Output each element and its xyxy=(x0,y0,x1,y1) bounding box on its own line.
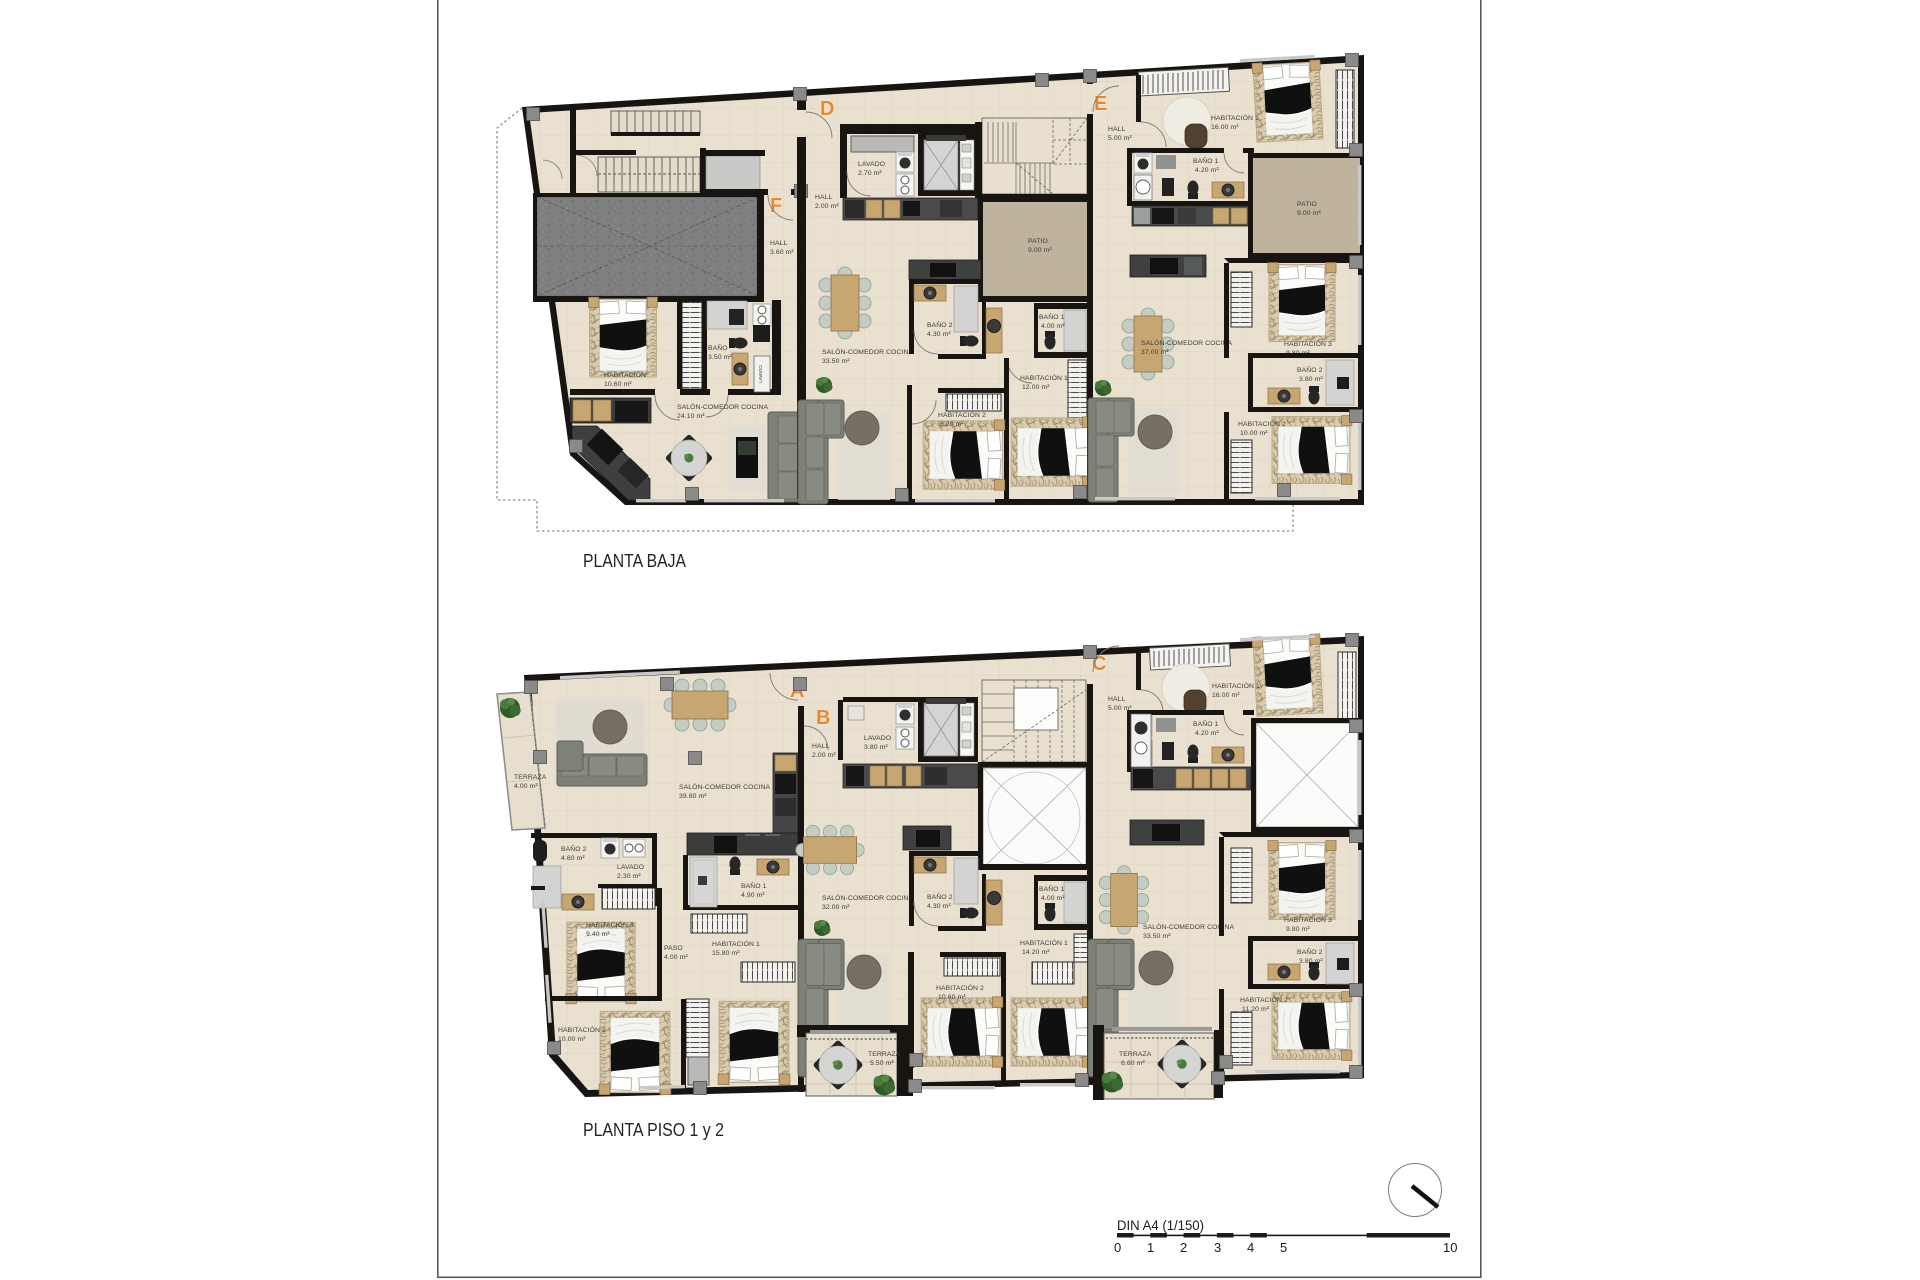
svg-text:BAÑO: BAÑO xyxy=(708,343,728,352)
svg-text:BAÑO 2: BAÑO 2 xyxy=(1297,947,1323,956)
svg-text:HALL: HALL xyxy=(1108,696,1126,703)
svg-text:B: B xyxy=(816,707,830,729)
svg-text:PATIO: PATIO xyxy=(1297,201,1317,208)
svg-text:PLANTA PISO 1 y 2: PLANTA PISO 1 y 2 xyxy=(583,1119,724,1140)
svg-text:14.20 m²: 14.20 m² xyxy=(1022,949,1050,956)
svg-text:4.00 m²: 4.00 m² xyxy=(664,954,688,961)
svg-text:DIN A4 (1/150): DIN A4 (1/150) xyxy=(1117,1217,1204,1233)
svg-text:4: 4 xyxy=(1247,1240,1254,1255)
svg-text:10.00 m²: 10.00 m² xyxy=(1240,430,1268,437)
svg-text:PASO: PASO xyxy=(664,945,683,952)
svg-text:LAVADO: LAVADO xyxy=(758,365,763,383)
svg-text:9.40 m²: 9.40 m² xyxy=(586,931,610,938)
svg-text:HABITACIÓN 1: HABITACIÓN 1 xyxy=(712,939,760,948)
svg-text:2.70 m²: 2.70 m² xyxy=(858,170,882,177)
svg-text:10: 10 xyxy=(1443,1240,1457,1255)
svg-text:SALÓN-COMEDOR COCINA: SALÓN-COMEDOR COCINA xyxy=(679,782,770,791)
svg-text:HABITACIÓN 1: HABITACIÓN 1 xyxy=(1020,938,1068,947)
svg-text:4.20 m²: 4.20 m² xyxy=(1195,167,1219,174)
svg-text:2: 2 xyxy=(1180,1240,1187,1255)
svg-text:LAVADO: LAVADO xyxy=(858,161,885,168)
svg-text:5: 5 xyxy=(1280,1240,1287,1255)
svg-text:SALÓN-COMEDOR COCINA: SALÓN-COMEDOR COCINA xyxy=(822,347,913,356)
svg-text:SALÓN-COMEDOR COCINA: SALÓN-COMEDOR COCINA xyxy=(1141,338,1232,347)
svg-text:16.00 m²: 16.00 m² xyxy=(1212,692,1240,699)
svg-text:10.60 m²: 10.60 m² xyxy=(938,994,966,1001)
svg-text:BAÑO 2: BAÑO 2 xyxy=(927,320,953,329)
svg-text:PLANTA BAJA: PLANTA BAJA xyxy=(583,550,687,571)
svg-text:D: D xyxy=(820,98,834,120)
svg-text:9.00 m²: 9.00 m² xyxy=(1297,210,1321,217)
svg-text:HABITACIÓN: HABITACIÓN xyxy=(604,370,646,379)
svg-text:LAVADO: LAVADO xyxy=(617,864,644,871)
svg-text:BAÑO 1: BAÑO 1 xyxy=(1193,156,1219,165)
svg-text:BAÑO 2: BAÑO 2 xyxy=(927,892,953,901)
svg-text:BAÑO 2: BAÑO 2 xyxy=(1297,365,1323,374)
svg-text:HABITACIÓN 2: HABITACIÓN 2 xyxy=(1240,995,1288,1004)
svg-text:3.50 m²: 3.50 m² xyxy=(708,354,732,361)
svg-text:4.90 m²: 4.90 m² xyxy=(741,892,765,899)
svg-text:4.30 m²: 4.30 m² xyxy=(927,331,951,338)
svg-text:5.00 m²: 5.00 m² xyxy=(1108,135,1132,142)
svg-text:HABITACIÓN 2: HABITACIÓN 2 xyxy=(938,410,986,419)
svg-text:9.00 m²: 9.00 m² xyxy=(1028,247,1052,254)
svg-text:4.00 m²: 4.00 m² xyxy=(514,783,538,790)
svg-text:HABITACIÓN 1: HABITACIÓN 1 xyxy=(1020,373,1068,382)
svg-text:8.20 m²: 8.20 m² xyxy=(940,421,964,428)
svg-text:HABITACIÓN 2: HABITACIÓN 2 xyxy=(936,983,984,992)
svg-text:3.80 m²: 3.80 m² xyxy=(1299,376,1323,383)
svg-text:PATIO: PATIO xyxy=(1028,238,1048,245)
svg-text:37.00 m²: 37.00 m² xyxy=(1141,349,1169,356)
svg-text:LAVADO: LAVADO xyxy=(864,735,891,742)
svg-text:32.00 m²: 32.00 m² xyxy=(822,904,850,911)
svg-text:5.50 m²: 5.50 m² xyxy=(870,1060,894,1067)
svg-text:HABITACIÓN 1: HABITACIÓN 1 xyxy=(1212,681,1260,690)
svg-text:BAÑO 1: BAÑO 1 xyxy=(1193,719,1219,728)
svg-text:6.60 m²: 6.60 m² xyxy=(1121,1060,1145,1067)
svg-text:3.80 m²: 3.80 m² xyxy=(864,744,888,751)
svg-text:1: 1 xyxy=(1147,1240,1154,1255)
svg-text:HABITACIÓN 3: HABITACIÓN 3 xyxy=(586,920,634,929)
svg-text:33.50 m²: 33.50 m² xyxy=(822,358,850,365)
svg-text:BAÑO 1: BAÑO 1 xyxy=(1039,312,1065,321)
svg-text:10.60 m²: 10.60 m² xyxy=(604,381,632,388)
svg-text:2.00 m²: 2.00 m² xyxy=(815,203,839,210)
svg-text:HABITACIÓN 3: HABITACIÓN 3 xyxy=(1284,339,1332,348)
svg-text:3.60 m²: 3.60 m² xyxy=(770,249,794,256)
svg-text:HABITACIÓN 2: HABITACIÓN 2 xyxy=(558,1025,606,1034)
svg-text:SALÓN-COMEDOR COCINA: SALÓN-COMEDOR COCINA xyxy=(677,402,768,411)
svg-text:15.80 m²: 15.80 m² xyxy=(712,950,740,957)
svg-text:3: 3 xyxy=(1214,1240,1221,1255)
svg-text:10.00 m²: 10.00 m² xyxy=(558,1036,586,1043)
svg-text:TERRAZA: TERRAZA xyxy=(1119,1051,1152,1058)
svg-text:HABITACIÓN 3: HABITACIÓN 3 xyxy=(1284,915,1332,924)
svg-text:4.00 m²: 4.00 m² xyxy=(1041,895,1065,902)
svg-text:24.10 m²: 24.10 m² xyxy=(677,413,705,420)
svg-text:TERRAZA: TERRAZA xyxy=(868,1051,901,1058)
svg-text:SALÓN-COMEDOR COCINA: SALÓN-COMEDOR COCINA xyxy=(822,893,913,902)
svg-text:16.00 m²: 16.00 m² xyxy=(1211,124,1239,131)
svg-text:HABITACIÓN 2: HABITACIÓN 2 xyxy=(1238,419,1286,428)
svg-text:HALL: HALL xyxy=(1108,126,1126,133)
svg-text:39.80 m²: 39.80 m² xyxy=(679,793,707,800)
svg-text:2.30 m²: 2.30 m² xyxy=(617,873,641,880)
svg-text:BAÑO 1: BAÑO 1 xyxy=(1039,884,1065,893)
svg-text:0: 0 xyxy=(1114,1240,1121,1255)
svg-text:HABITACIÓN 1: HABITACIÓN 1 xyxy=(1211,113,1259,122)
svg-text:9.80 m²: 9.80 m² xyxy=(1286,926,1310,933)
svg-text:11.20 m²: 11.20 m² xyxy=(1242,1006,1270,1013)
svg-text:4.30 m²: 4.30 m² xyxy=(927,903,951,910)
svg-text:HALL: HALL xyxy=(812,743,830,750)
svg-text:HALL: HALL xyxy=(770,240,788,247)
svg-text:12.00 m²: 12.00 m² xyxy=(1022,384,1050,391)
svg-text:HALL: HALL xyxy=(815,194,833,201)
svg-text:E: E xyxy=(1094,93,1107,115)
svg-text:BAÑO 1: BAÑO 1 xyxy=(741,881,767,890)
svg-text:TERRAZA: TERRAZA xyxy=(514,774,547,781)
svg-text:2.00 m²: 2.00 m² xyxy=(812,752,836,759)
svg-text:BAÑO 2: BAÑO 2 xyxy=(561,844,587,853)
svg-text:33.50 m²: 33.50 m² xyxy=(1143,933,1171,940)
svg-text:4.00 m²: 4.00 m² xyxy=(1041,323,1065,330)
svg-text:4.20 m²: 4.20 m² xyxy=(1195,730,1219,737)
svg-text:3.80 m²: 3.80 m² xyxy=(1299,958,1323,965)
svg-text:4.60 m²: 4.60 m² xyxy=(561,855,585,862)
